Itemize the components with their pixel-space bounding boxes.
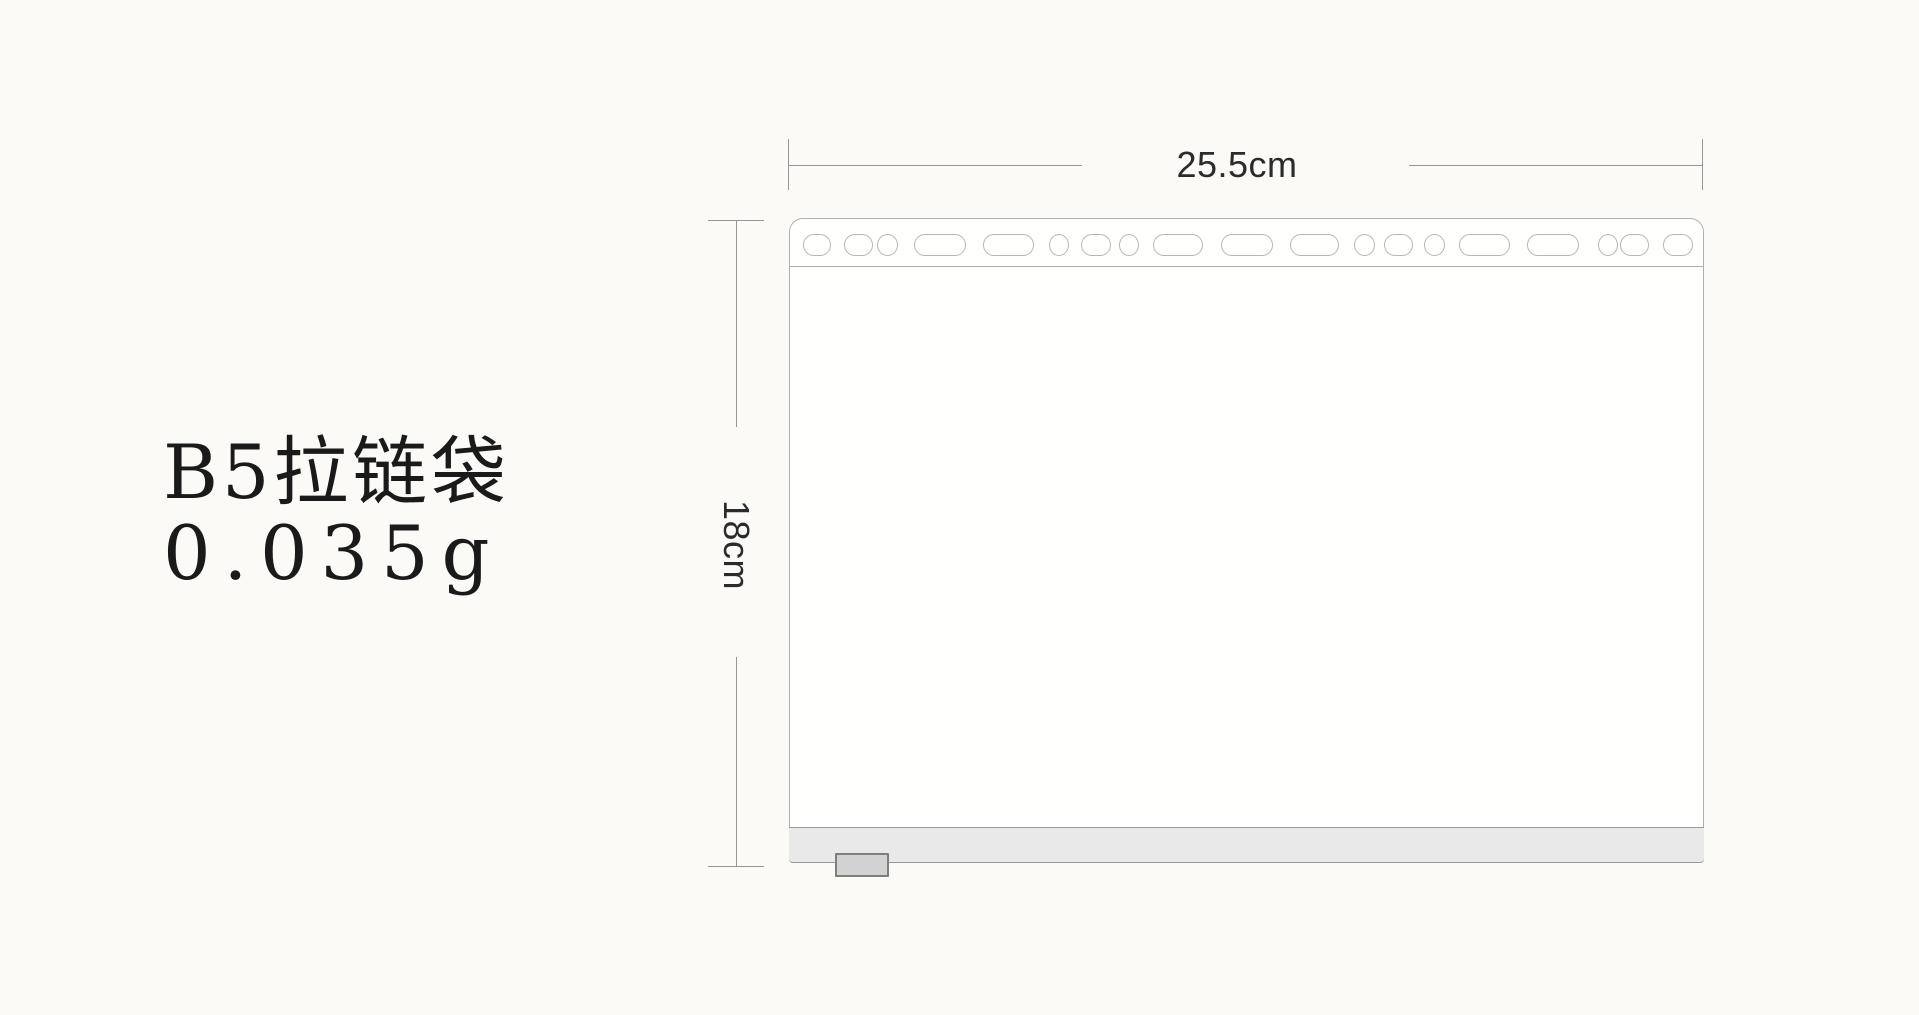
product-title: B5拉链袋	[163, 432, 510, 513]
punch-hole	[1663, 234, 1693, 256]
product-label: B5拉链袋 0.035g	[163, 432, 510, 594]
product-weight: 0.035g	[163, 513, 510, 594]
width-dimension-line-left	[788, 165, 1082, 166]
height-dimension-label: 18cm	[712, 463, 760, 627]
punch-hole	[877, 234, 898, 256]
punch-hole	[1620, 234, 1649, 256]
bag-outline	[789, 218, 1704, 863]
height-dimension-line-bottom	[736, 657, 737, 866]
height-dimension-line-top	[736, 220, 737, 427]
holes-separator-line	[789, 266, 1704, 267]
punch-hole	[1459, 234, 1510, 256]
punch-hole	[844, 234, 873, 256]
punch-hole	[1049, 234, 1069, 256]
width-dimension-tick-right	[1702, 139, 1703, 190]
product-diagram-canvas: B5拉链袋 0.035g 25.5cm 18cm	[0, 0, 1919, 1015]
punch-hole	[1598, 234, 1618, 256]
punch-hole	[803, 234, 831, 256]
width-dimension-line-right	[1409, 165, 1702, 166]
punch-hole	[1221, 234, 1273, 256]
height-dimension-tick-bottom	[708, 866, 764, 867]
punch-hole	[1384, 234, 1413, 256]
punch-holes-row	[790, 219, 1703, 862]
punch-hole	[983, 234, 1034, 256]
punch-hole	[1119, 234, 1139, 256]
width-dimension-label: 25.5cm	[1147, 143, 1327, 187]
punch-hole	[1081, 234, 1111, 256]
punch-hole	[1424, 234, 1445, 256]
punch-hole	[1527, 234, 1579, 256]
punch-hole	[1354, 234, 1375, 256]
punch-hole	[914, 234, 966, 256]
punch-hole	[1153, 234, 1203, 256]
zipper-pull-tab	[835, 853, 889, 877]
zipper-strip	[789, 827, 1704, 863]
punch-hole	[1290, 234, 1339, 256]
height-dimension-label-text: 18cm	[715, 500, 757, 590]
